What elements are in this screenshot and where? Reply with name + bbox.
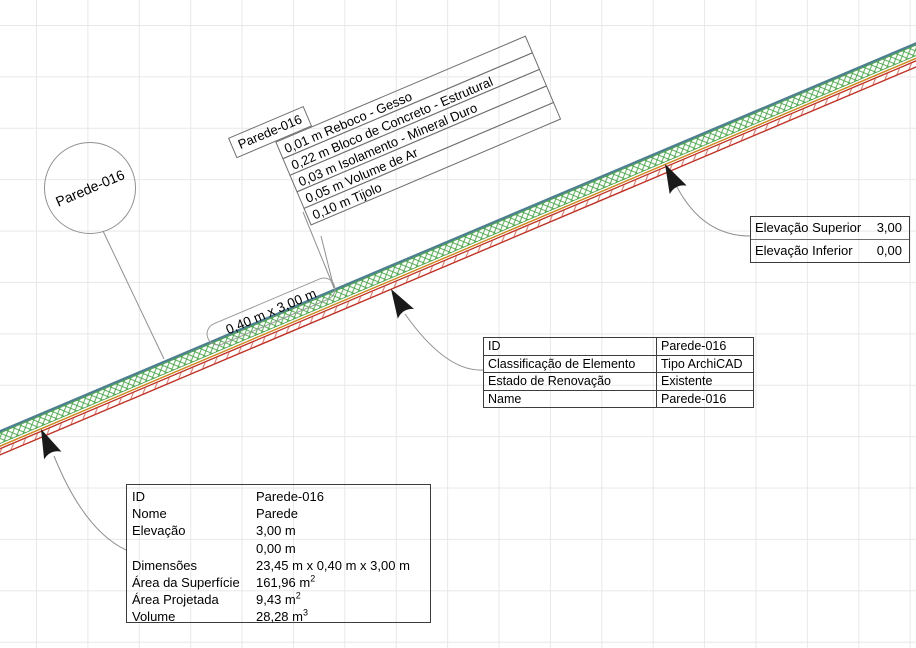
row-value: 0,00 m <box>256 540 430 557</box>
id-table-leader-line <box>405 314 483 370</box>
table-row: Estado de RenovaçãoExistente <box>484 372 753 390</box>
row-value: Parede-016 <box>256 488 430 505</box>
unit-exponent: 2 <box>296 591 301 601</box>
row-value: 0,00 <box>877 240 902 262</box>
table-row: Elevação3,00 m <box>127 522 430 539</box>
table-row: Dimensões23,45 m x 0,40 m x 3,00 m <box>127 557 430 574</box>
row-value: 23,45 m x 0,40 m x 3,00 m <box>256 557 430 574</box>
row-value: 3,00 <box>877 217 902 239</box>
table-row: Elevação Inferior0,00 <box>751 240 909 262</box>
row-label: Nome <box>127 505 256 522</box>
unit-exponent: 2 <box>310 574 315 584</box>
elevation-table[interactable]: Elevação Superior3,00Elevação Inferior0,… <box>750 216 910 263</box>
row-label: Elevação Inferior <box>755 240 853 262</box>
elevation-leader-line <box>677 187 750 236</box>
table-row: NameParede-016 <box>484 390 753 408</box>
unit-exponent: 3 <box>303 608 308 618</box>
row-label: Área Projetada <box>127 591 256 608</box>
table-row: Área da Superfície161,96 m2 <box>127 574 430 591</box>
row-label: Elevação <box>127 522 256 539</box>
row-label: Volume <box>127 608 256 625</box>
row-value: Parede-016 <box>657 338 753 355</box>
row-label: ID <box>484 338 657 355</box>
row-value: 3,00 m <box>256 522 430 539</box>
bubble-leader-line <box>103 231 164 359</box>
row-label <box>127 540 256 557</box>
table-row: Classificação de ElementoTipo ArchiCAD <box>484 355 753 373</box>
table-row: NomeParede <box>127 505 430 522</box>
row-value: 161,96 m2 <box>256 574 430 591</box>
properties-table[interactable]: IDParede-016NomeParedeElevação3,00 m0,00… <box>126 484 431 623</box>
row-value: Parede-016 <box>657 391 753 408</box>
row-value: 9,43 m2 <box>256 591 430 608</box>
table-row: Elevação Superior3,00 <box>751 217 909 240</box>
id-classification-table[interactable]: IDParede-016Classificação de ElementoTip… <box>483 337 754 408</box>
row-label: Elevação Superior <box>755 217 861 239</box>
row-label: Classificação de Elemento <box>484 356 657 373</box>
table-row: IDParede-016 <box>127 488 430 505</box>
row-label: Estado de Renovação <box>484 373 657 390</box>
row-label: Name <box>484 391 657 408</box>
table-row: IDParede-016 <box>484 338 753 355</box>
row-label: Dimensões <box>127 557 256 574</box>
row-label: ID <box>127 488 256 505</box>
row-value: Existente <box>657 373 753 390</box>
table-row: Volume28,28 m3 <box>127 608 430 625</box>
table-row: Área Projetada9,43 m2 <box>127 591 430 608</box>
row-value: Parede <box>256 505 430 522</box>
row-value: Tipo ArchiCAD <box>657 356 753 373</box>
properties-leader-line <box>54 456 126 550</box>
drawing-canvas: Parede-016 Parede-016 0,01 m Reboco - Ge… <box>0 0 916 648</box>
row-label: Área da Superfície <box>127 574 256 591</box>
table-row: 0,00 m <box>127 540 430 557</box>
row-value: 28,28 m3 <box>256 608 430 625</box>
